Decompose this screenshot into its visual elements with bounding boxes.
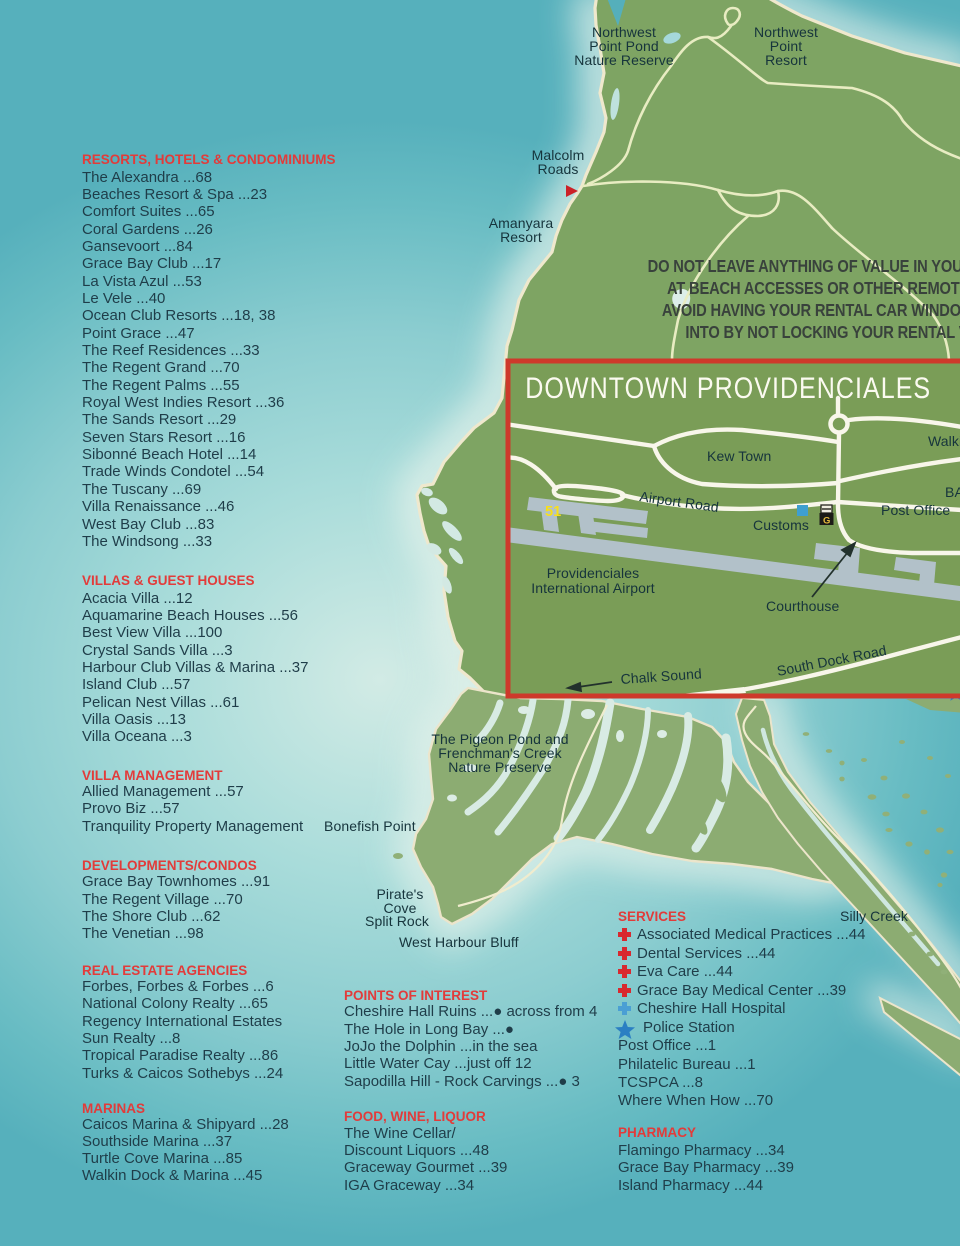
svg-text:INTO BY NOT LOCKING YOUR RENTA: INTO BY NOT LOCKING YOUR RENTAL VEHICLE. — [685, 323, 960, 342]
svg-text:West Harbour Bluff: West Harbour Bluff — [399, 934, 519, 950]
svg-text:Southside Marina ...37: Southside Marina ...37 — [82, 1133, 232, 1150]
svg-text:Philatelic Bureau ...1: Philatelic Bureau ...1 — [618, 1056, 756, 1073]
svg-text:The Windsong ...33: The Windsong ...33 — [82, 533, 212, 550]
svg-text:Kew Town: Kew Town — [707, 448, 771, 464]
svg-text:BANK: BANK — [945, 484, 960, 500]
svg-text:The Alexandra ...68: The Alexandra ...68 — [82, 169, 212, 186]
svg-text:Gansevoort ...84: Gansevoort ...84 — [82, 238, 193, 255]
svg-text:Sibonné Beach Hotel ...14: Sibonné Beach Hotel ...14 — [82, 446, 256, 463]
svg-text:Walkin: Walkin — [928, 433, 960, 449]
svg-text:DOWNTOWN PROVIDENCIALES: DOWNTOWN PROVIDENCIALES — [525, 371, 931, 404]
svg-text:National Colony Realty ...65: National Colony Realty ...65 — [82, 995, 268, 1012]
svg-text:The Hole in Long Bay ...●: The Hole in Long Bay ...● — [344, 1021, 514, 1038]
svg-text:Courthouse: Courthouse — [766, 598, 839, 614]
svg-text:Comfort Suites ...65: Comfort Suites ...65 — [82, 203, 215, 220]
svg-text:Grace Bay Medical Center ...39: Grace Bay Medical Center ...39 — [637, 982, 846, 999]
svg-text:The Regent Palms ...55: The Regent Palms ...55 — [82, 377, 240, 394]
svg-text:DO NOT LEAVE ANYTHING OF VALUE: DO NOT LEAVE ANYTHING OF VALUE IN YOUR R… — [648, 257, 960, 276]
svg-text:Bonefish Point: Bonefish Point — [324, 818, 416, 834]
svg-text:REAL ESTATE AGENCIES: REAL ESTATE AGENCIES — [82, 963, 247, 978]
svg-text:MARINAS: MARINAS — [82, 1101, 145, 1116]
svg-text:AVOID HAVING YOUR RENTAL CAR W: AVOID HAVING YOUR RENTAL CAR WINDOWS BRO… — [662, 301, 960, 320]
svg-text:FOOD, WINE, LIQUOR: FOOD, WINE, LIQUOR — [344, 1109, 486, 1124]
svg-text:Nature Preserve: Nature Preserve — [448, 759, 552, 775]
svg-text:West Bay Club ...83: West Bay Club ...83 — [82, 516, 214, 533]
svg-text:Le Vele ...40: Le Vele ...40 — [82, 290, 165, 307]
svg-text:Villa Oasis ...13: Villa Oasis ...13 — [82, 711, 186, 728]
svg-text:Coral Gardens ...26: Coral Gardens ...26 — [82, 221, 213, 238]
svg-text:Villa Oceana ...3: Villa Oceana ...3 — [82, 728, 192, 745]
svg-text:Regency International Estates: Regency International Estates — [82, 1013, 282, 1030]
svg-text:Grace Bay Club ...17: Grace Bay Club ...17 — [82, 255, 221, 272]
svg-text:Providenciales: Providenciales — [547, 565, 639, 581]
svg-text:POINTS OF INTEREST: POINTS OF INTEREST — [344, 988, 488, 1003]
svg-text:IGA Graceway ...34: IGA Graceway ...34 — [344, 1177, 474, 1194]
svg-text:The Wine Cellar/: The Wine Cellar/ — [344, 1125, 457, 1142]
svg-text:SERVICES: SERVICES — [618, 909, 686, 924]
svg-text:Trade Winds Condotel ...54: Trade Winds Condotel ...54 — [82, 463, 264, 480]
svg-text:Caicos Marina & Shipyard ...28: Caicos Marina & Shipyard ...28 — [82, 1116, 289, 1133]
svg-text:Post Office: Post Office — [881, 502, 950, 518]
svg-text:Little Water Cay ...just off 1: Little Water Cay ...just off 12 — [344, 1055, 532, 1072]
svg-text:Sun Realty ...8: Sun Realty ...8 — [82, 1030, 180, 1047]
svg-text:Where When How ...70: Where When How ...70 — [618, 1092, 773, 1109]
svg-text:RESORTS, HOTELS & CONDOMINIUMS: RESORTS, HOTELS & CONDOMINIUMS — [82, 152, 336, 167]
svg-text:Post Office ...1: Post Office ...1 — [618, 1037, 716, 1054]
svg-text:Seven Stars Resort ...16: Seven Stars Resort ...16 — [82, 429, 245, 446]
svg-text:The Regent Grand ...70: The Regent Grand ...70 — [82, 359, 240, 376]
svg-text:Acacia Villa ...12: Acacia Villa ...12 — [82, 590, 193, 607]
svg-text:Crystal Sands Villa ...3: Crystal Sands Villa ...3 — [82, 642, 233, 659]
svg-text:International Airport: International Airport — [531, 580, 655, 596]
svg-text:VILLA MANAGEMENT: VILLA MANAGEMENT — [82, 768, 223, 783]
svg-text:Allied Management ...57: Allied Management ...57 — [82, 783, 244, 800]
svg-text:The Regent Village ...70: The Regent Village ...70 — [82, 891, 243, 908]
svg-text:The Venetian ...98: The Venetian ...98 — [82, 925, 204, 942]
svg-text:The Shore Club ...62: The Shore Club ...62 — [82, 908, 220, 925]
svg-text:Villa Renaissance ...46: Villa Renaissance ...46 — [82, 498, 234, 515]
svg-text:Dental Services ...44: Dental Services ...44 — [637, 945, 775, 962]
svg-text:Walkin Dock & Marina ...45: Walkin Dock & Marina ...45 — [82, 1167, 262, 1184]
svg-text:Tranquility Property Managemen: Tranquility Property Management — [82, 818, 304, 835]
svg-text:TCSPCA ...8: TCSPCA ...8 — [618, 1074, 703, 1091]
svg-text:VILLAS & GUEST HOUSES: VILLAS & GUEST HOUSES — [82, 573, 255, 588]
svg-text:Aquamarine Beach Houses ...56: Aquamarine Beach Houses ...56 — [82, 607, 298, 624]
svg-text:Police Station: Police Station — [643, 1019, 735, 1036]
svg-text:PHARMACY: PHARMACY — [618, 1125, 696, 1140]
svg-text:Forbes, Forbes & Forbes ...6: Forbes, Forbes & Forbes ...6 — [82, 978, 274, 995]
svg-text:Harbour Club Villas & Marina .: Harbour Club Villas & Marina ...37 — [82, 659, 309, 676]
svg-text:Sapodilla Hill - Rock Carvings: Sapodilla Hill - Rock Carvings ...● 3 — [344, 1073, 580, 1090]
svg-text:G: G — [823, 516, 830, 527]
svg-text:Split Rock: Split Rock — [365, 913, 430, 929]
svg-text:Silly Creek: Silly Creek — [840, 908, 909, 924]
svg-text:The Reef Residences ...33: The Reef Residences ...33 — [82, 342, 260, 359]
svg-text:Discount Liquors ...48: Discount Liquors ...48 — [344, 1142, 489, 1159]
svg-text:Resort: Resort — [765, 52, 807, 68]
svg-text:Resort: Resort — [500, 229, 542, 245]
svg-text:Island Club ...57: Island Club ...57 — [82, 676, 190, 693]
svg-text:Beaches Resort & Spa ...23: Beaches Resort & Spa ...23 — [82, 186, 267, 203]
svg-text:AT BEACH ACCESSES OR OTHER REM: AT BEACH ACCESSES OR OTHER REMOTE LOCATI… — [667, 279, 960, 298]
svg-text:Ocean Club Resorts ...18, 38: Ocean Club Resorts ...18, 38 — [82, 307, 275, 324]
svg-text:DEVELOPMENTS/CONDOS: DEVELOPMENTS/CONDOS — [82, 858, 257, 873]
svg-text:Roads: Roads — [538, 161, 579, 177]
svg-text:Graceway Gourmet ...39: Graceway Gourmet ...39 — [344, 1159, 507, 1176]
svg-text:Pelican Nest Villas ...61: Pelican Nest Villas ...61 — [82, 694, 239, 711]
svg-text:Best View Villa ...100: Best View Villa ...100 — [82, 624, 222, 641]
svg-text:Grace Bay Townhomes ...91: Grace Bay Townhomes ...91 — [82, 873, 270, 890]
svg-text:Point Grace ...47: Point Grace ...47 — [82, 325, 195, 342]
svg-text:Grace Bay Pharmacy ...39: Grace Bay Pharmacy ...39 — [618, 1159, 794, 1176]
svg-text:Island Pharmacy ...44: Island Pharmacy ...44 — [618, 1177, 763, 1194]
svg-text:Turtle Cove Marina ...85: Turtle Cove Marina ...85 — [82, 1150, 242, 1167]
svg-text:Turks & Caicos Sothebys ...24: Turks & Caicos Sothebys ...24 — [82, 1065, 283, 1082]
svg-text:Flamingo Pharmacy ...34: Flamingo Pharmacy ...34 — [618, 1142, 785, 1159]
svg-text:The Tuscany ...69: The Tuscany ...69 — [82, 481, 201, 498]
svg-text:Associated Medical Practices .: Associated Medical Practices ...44 — [637, 926, 865, 943]
svg-text:Cheshire Hall Hospital: Cheshire Hall Hospital — [637, 1000, 785, 1017]
svg-text:Provo Biz ...57: Provo Biz ...57 — [82, 800, 180, 817]
svg-text:Tropical Paradise Realty ...86: Tropical Paradise Realty ...86 — [82, 1047, 278, 1064]
svg-text:La Vista Azul ...53: La Vista Azul ...53 — [82, 273, 202, 290]
svg-text:51: 51 — [545, 504, 561, 520]
svg-text:Customs: Customs — [753, 517, 809, 533]
svg-text:Royal West Indies Resort ...36: Royal West Indies Resort ...36 — [82, 394, 284, 411]
svg-text:Eva Care ...44: Eva Care ...44 — [637, 963, 733, 980]
svg-text:Cheshire Hall Ruins ...● acro: Cheshire Hall Ruins ...● across from 4 — [344, 1003, 597, 1020]
svg-text:JoJo the Dolphin ...in the sea: JoJo the Dolphin ...in the sea — [344, 1038, 538, 1055]
svg-text:Nature Reserve: Nature Reserve — [574, 52, 674, 68]
svg-text:The Sands Resort ...29: The Sands Resort ...29 — [82, 411, 236, 428]
